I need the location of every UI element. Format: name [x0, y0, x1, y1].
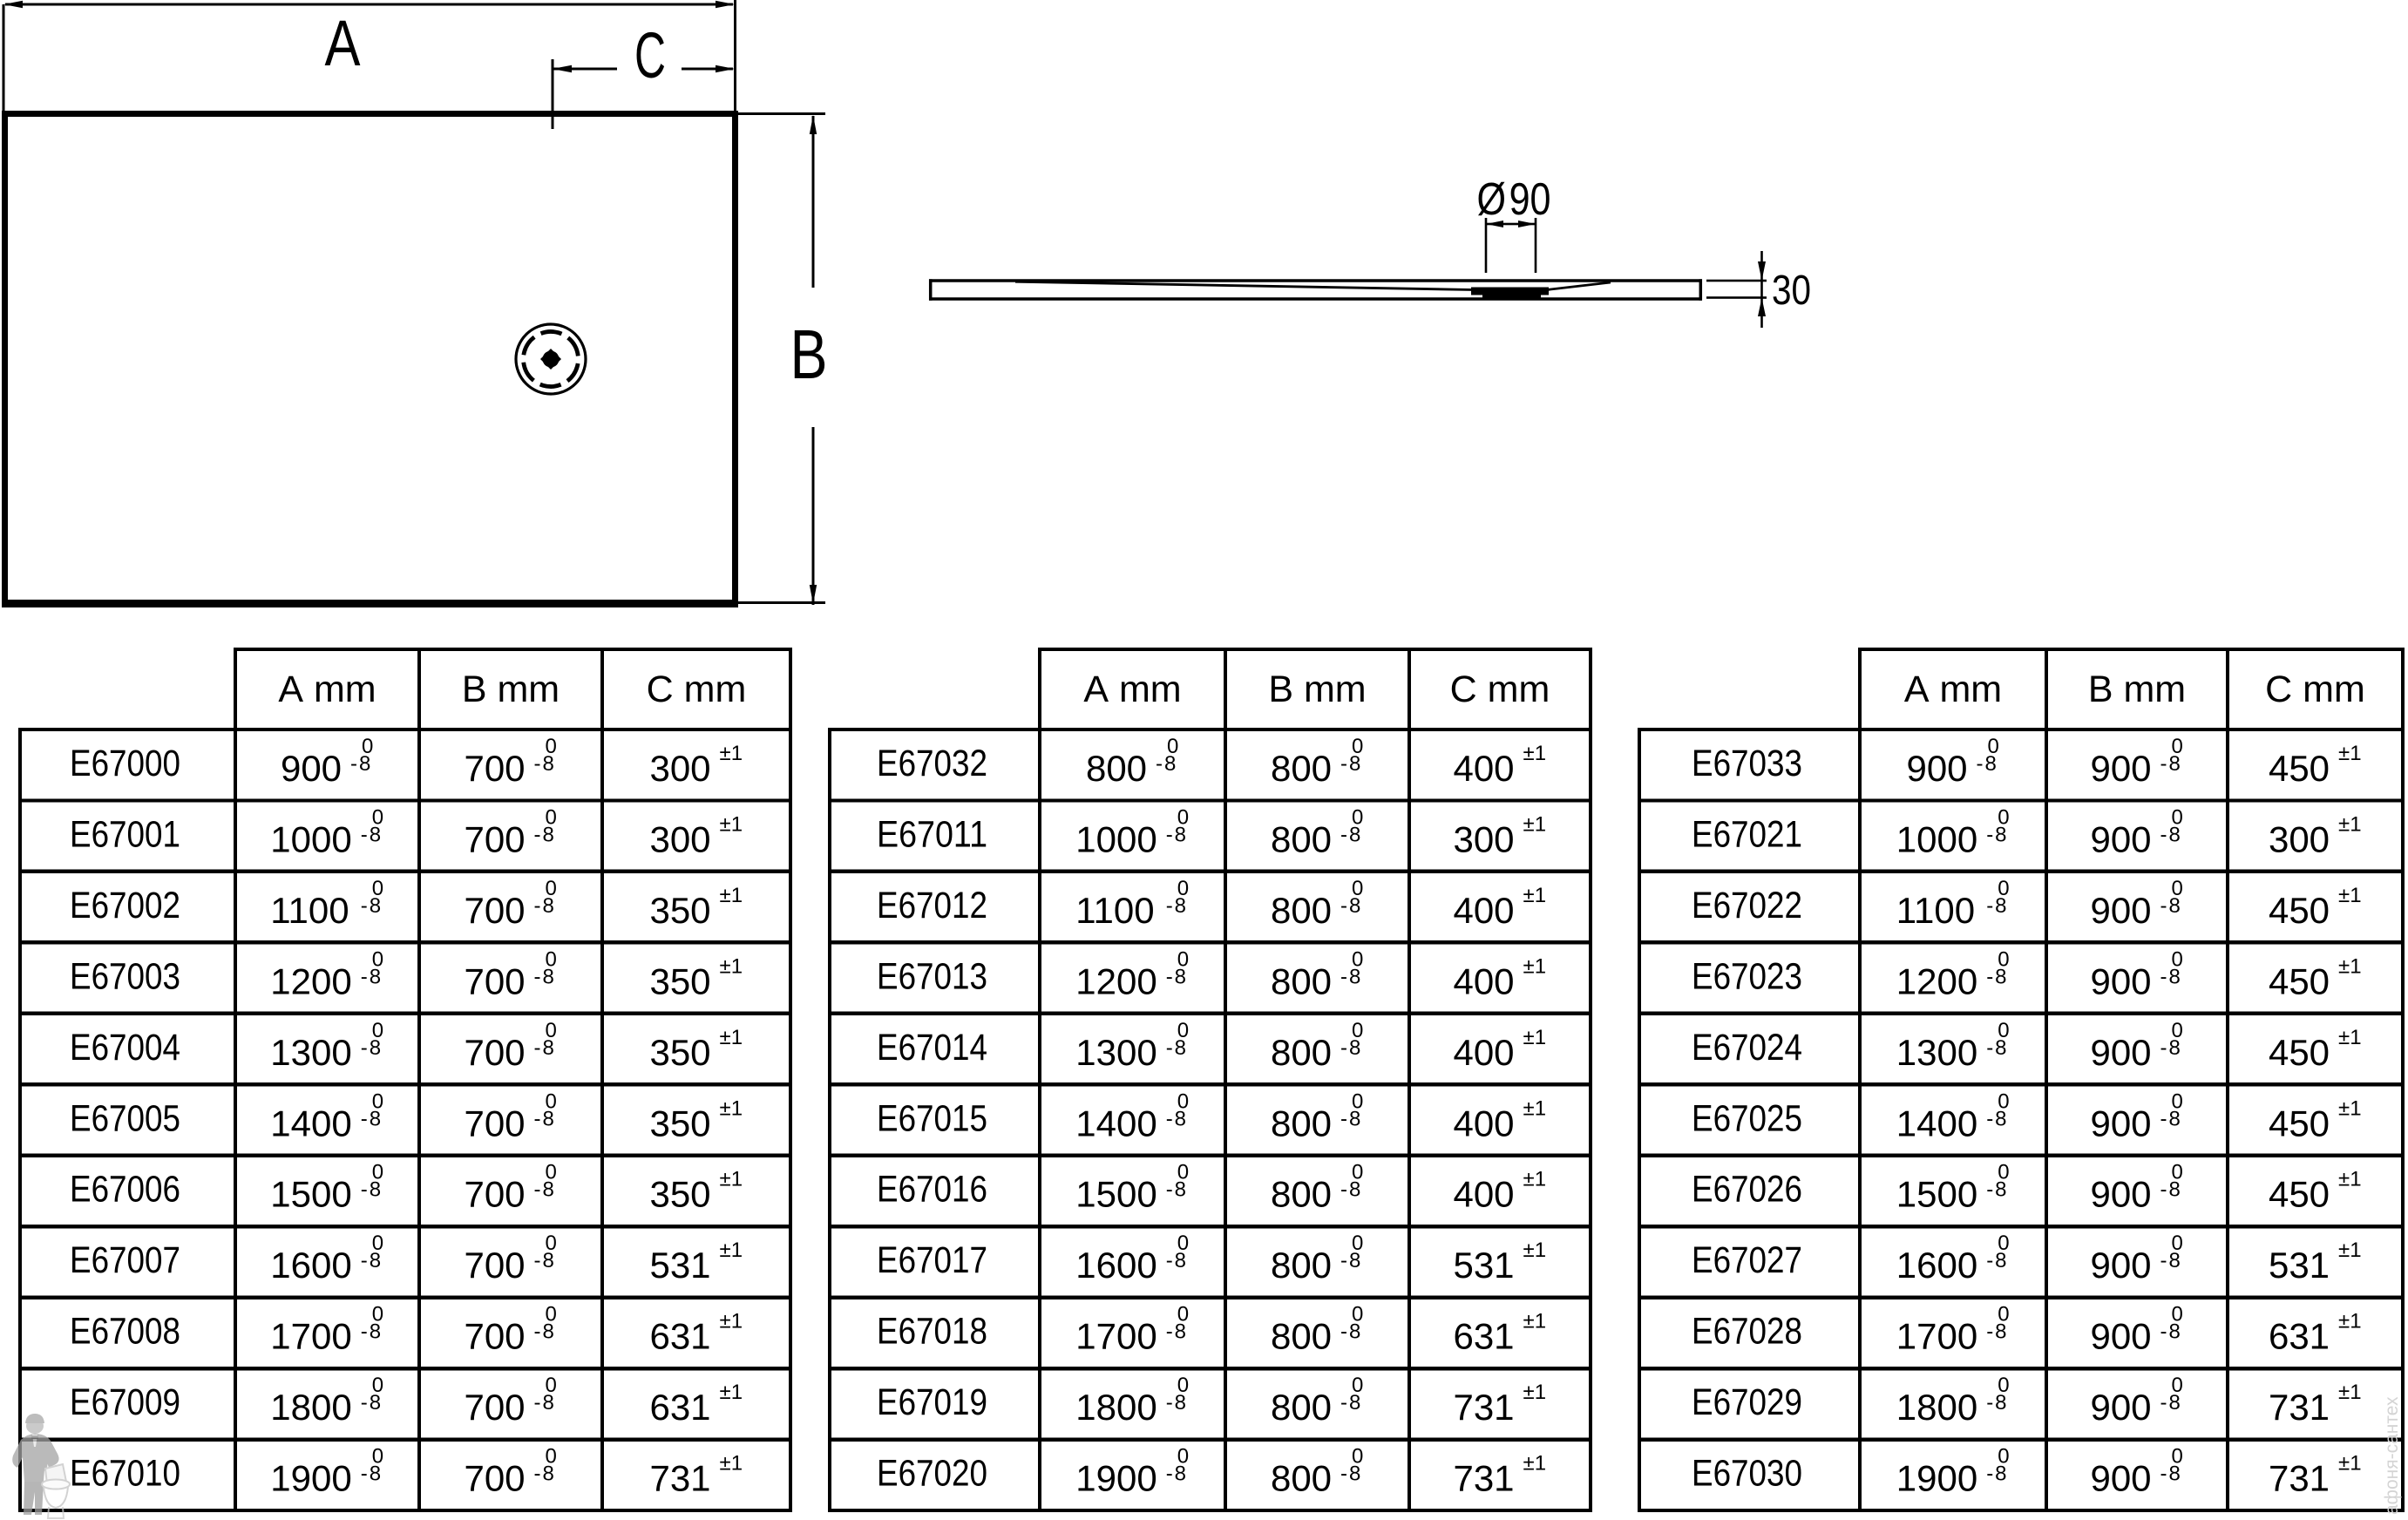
svg-text:- 8: - 8: [1340, 1391, 1360, 1415]
svg-text:±1: ±1: [720, 1096, 743, 1120]
svg-text:B mm: B mm: [2088, 668, 2186, 710]
svg-text:- 8: - 8: [350, 752, 370, 776]
svg-text:450: 450: [2269, 1174, 2330, 1215]
svg-text:- 8: - 8: [2160, 752, 2181, 776]
svg-text:±1: ±1: [1523, 1452, 1547, 1476]
svg-text:±1: ±1: [2338, 954, 2362, 978]
svg-text:E67024: E67024: [1692, 1027, 1802, 1069]
svg-text:- 8: - 8: [361, 1320, 381, 1344]
svg-text:- 8: - 8: [1986, 894, 2006, 918]
svg-text:- 8: - 8: [2160, 965, 2181, 988]
svg-text:450: 450: [2269, 1032, 2330, 1073]
svg-text:450: 450: [2269, 890, 2330, 931]
svg-text:E67008: E67008: [70, 1311, 180, 1353]
svg-text:1800: 1800: [270, 1387, 351, 1428]
svg-text:- 8: - 8: [2160, 1391, 2181, 1415]
svg-text:631: 631: [1453, 1316, 1514, 1357]
svg-text:- 8: - 8: [1340, 965, 1360, 988]
svg-text:±1: ±1: [2338, 812, 2362, 836]
svg-text:E67020: E67020: [877, 1453, 987, 1495]
svg-text:900: 900: [281, 748, 342, 789]
svg-text:1400: 1400: [1075, 1103, 1157, 1143]
svg-text:- 8: - 8: [1340, 1249, 1360, 1272]
svg-text:E67023: E67023: [1692, 955, 1802, 997]
svg-text:1500: 1500: [1075, 1174, 1157, 1215]
svg-text:±1: ±1: [720, 1310, 743, 1333]
svg-text:±1: ±1: [720, 1026, 743, 1049]
svg-text:731: 731: [2269, 1387, 2330, 1428]
svg-text:±1: ±1: [2338, 1096, 2362, 1120]
svg-text:- 8: - 8: [534, 1107, 554, 1130]
svg-text:800: 800: [1271, 1458, 1332, 1499]
svg-text:- 8: - 8: [1340, 894, 1360, 918]
svg-text:731: 731: [2269, 1458, 2330, 1499]
svg-text:±1: ±1: [720, 1452, 743, 1476]
svg-text:700: 700: [464, 1387, 525, 1428]
svg-text:±1: ±1: [1523, 954, 1547, 978]
svg-text:C mm: C mm: [2265, 668, 2365, 710]
svg-text:631: 631: [2269, 1316, 2330, 1357]
svg-text:- 8: - 8: [534, 752, 554, 776]
svg-text:1000: 1000: [1075, 818, 1157, 859]
svg-text:- 8: - 8: [534, 1320, 554, 1344]
svg-text:- 8: - 8: [1986, 1107, 2006, 1130]
svg-text:1700: 1700: [1075, 1316, 1157, 1357]
svg-text:E67017: E67017: [877, 1239, 987, 1281]
svg-text:900: 900: [2090, 1316, 2151, 1357]
svg-text:- 8: - 8: [361, 823, 381, 846]
svg-text:300: 300: [649, 818, 710, 859]
svg-text:- 8: - 8: [2160, 1462, 2181, 1486]
svg-text:E67004: E67004: [70, 1027, 180, 1069]
svg-text:E67022: E67022: [1692, 885, 1802, 926]
svg-text:1900: 1900: [270, 1458, 351, 1499]
svg-text:E67027: E67027: [1692, 1239, 1802, 1281]
svg-text:E67002: E67002: [70, 885, 180, 926]
svg-text:350: 350: [649, 1174, 710, 1215]
svg-text:- 8: - 8: [534, 1462, 554, 1486]
svg-text:400: 400: [1453, 748, 1514, 789]
svg-text:800: 800: [1271, 1316, 1332, 1357]
svg-text:400: 400: [1453, 960, 1514, 1001]
svg-text:300: 300: [1453, 818, 1514, 859]
svg-text:B: B: [790, 316, 828, 393]
svg-text:- 8: - 8: [361, 1391, 381, 1415]
svg-text:- 8: - 8: [1166, 1107, 1186, 1130]
svg-text:- 8: - 8: [1166, 1391, 1186, 1415]
svg-text:C mm: C mm: [647, 668, 747, 710]
svg-text:900: 900: [2090, 818, 2151, 859]
svg-text:350: 350: [649, 1103, 710, 1143]
svg-text:1300: 1300: [1896, 1032, 1977, 1073]
svg-text:800: 800: [1271, 1387, 1332, 1428]
svg-text:±1: ±1: [2338, 1238, 2362, 1262]
svg-text:900: 900: [2090, 1245, 2151, 1286]
svg-text:- 8: - 8: [534, 965, 554, 988]
svg-text:900: 900: [2090, 1103, 2151, 1143]
svg-text:±1: ±1: [1523, 1026, 1547, 1049]
svg-text:±1: ±1: [1523, 1168, 1547, 1191]
svg-text:900: 900: [2090, 960, 2151, 1001]
svg-text:531: 531: [2269, 1245, 2330, 1286]
svg-text:E67001: E67001: [70, 813, 180, 855]
svg-text:900: 900: [1906, 748, 1967, 789]
svg-text:- 8: - 8: [1340, 1320, 1360, 1344]
svg-text:- 8: - 8: [1986, 1036, 2006, 1060]
svg-text:±1: ±1: [720, 884, 743, 907]
svg-text:- 8: - 8: [534, 1178, 554, 1202]
svg-text:A: A: [325, 7, 362, 79]
svg-text:731: 731: [649, 1458, 710, 1499]
svg-text:E67013: E67013: [877, 955, 987, 997]
svg-text:- 8: - 8: [1166, 823, 1186, 846]
svg-text:350: 350: [649, 960, 710, 1001]
svg-text:±1: ±1: [1523, 742, 1547, 765]
svg-text:900: 900: [2090, 748, 2151, 789]
svg-text:E67005: E67005: [70, 1097, 180, 1139]
svg-text:1300: 1300: [270, 1032, 351, 1073]
svg-text:631: 631: [649, 1316, 710, 1357]
svg-text:1800: 1800: [1075, 1387, 1157, 1428]
svg-text:E67000: E67000: [70, 743, 180, 784]
svg-text:900: 900: [2090, 890, 2151, 931]
svg-text:900: 900: [2090, 1174, 2151, 1215]
svg-text:- 8: - 8: [1986, 823, 2006, 846]
svg-text:1500: 1500: [270, 1174, 351, 1215]
svg-text:350: 350: [649, 890, 710, 931]
svg-text:±1: ±1: [720, 1238, 743, 1262]
svg-text:- 8: - 8: [1986, 965, 2006, 988]
svg-text:- 8: - 8: [361, 1462, 381, 1486]
svg-text:±1: ±1: [2338, 1310, 2362, 1333]
svg-text:C mm: C mm: [1450, 668, 1550, 710]
svg-text:E67025: E67025: [1692, 1097, 1802, 1139]
svg-text:±1: ±1: [1523, 1096, 1547, 1120]
svg-text:±1: ±1: [1523, 812, 1547, 836]
svg-text:800: 800: [1271, 748, 1332, 789]
svg-text:A mm: A mm: [1083, 668, 1181, 710]
svg-text:400: 400: [1453, 1174, 1514, 1215]
svg-text:- 8: - 8: [1166, 1249, 1186, 1272]
svg-text:E67029: E67029: [1692, 1381, 1802, 1423]
svg-text:1900: 1900: [1075, 1458, 1157, 1499]
svg-text:- 8: - 8: [2160, 1107, 2181, 1130]
svg-text:±1: ±1: [1523, 884, 1547, 907]
svg-text:E67007: E67007: [70, 1239, 180, 1281]
svg-text:±1: ±1: [1523, 1381, 1547, 1404]
svg-text:- 8: - 8: [361, 1178, 381, 1202]
svg-text:- 8: - 8: [1340, 1107, 1360, 1130]
svg-text:B mm: B mm: [1268, 668, 1366, 710]
svg-text:400: 400: [1453, 890, 1514, 931]
svg-text:531: 531: [1453, 1245, 1514, 1286]
svg-text:800: 800: [1271, 1103, 1332, 1143]
svg-text:E67009: E67009: [70, 1381, 180, 1423]
svg-text:- 8: - 8: [534, 823, 554, 846]
svg-text:900: 900: [2090, 1032, 2151, 1073]
svg-text:±1: ±1: [2338, 884, 2362, 907]
svg-text:афоня-сантех: афоня-сантех: [2382, 1396, 2402, 1515]
svg-text:- 8: - 8: [534, 894, 554, 918]
svg-text:30: 30: [1772, 268, 1811, 314]
svg-text:E67011: E67011: [877, 813, 987, 855]
svg-text:700: 700: [464, 1458, 525, 1499]
svg-text:700: 700: [464, 1103, 525, 1143]
svg-text:1900: 1900: [1896, 1458, 1977, 1499]
svg-text:1100: 1100: [1075, 890, 1154, 931]
svg-text:A mm: A mm: [1904, 668, 2002, 710]
svg-text:900: 900: [2090, 1387, 2151, 1428]
svg-text:±1: ±1: [720, 1381, 743, 1404]
svg-text:800: 800: [1271, 890, 1332, 931]
svg-text:±1: ±1: [2338, 1381, 2362, 1404]
svg-text:E67030: E67030: [1692, 1453, 1802, 1495]
svg-text:±1: ±1: [2338, 742, 2362, 765]
svg-text:- 8: - 8: [2160, 823, 2181, 846]
svg-text:E67018: E67018: [877, 1311, 987, 1353]
svg-text:- 8: - 8: [361, 1107, 381, 1130]
svg-text:700: 700: [464, 1032, 525, 1073]
svg-text:B mm: B mm: [462, 668, 560, 710]
svg-text:800: 800: [1271, 960, 1332, 1001]
svg-text:700: 700: [464, 890, 525, 931]
svg-text:E67016: E67016: [877, 1169, 987, 1211]
svg-text:900: 900: [2090, 1458, 2151, 1499]
svg-text:1700: 1700: [270, 1316, 351, 1357]
svg-text:- 8: - 8: [1340, 1178, 1360, 1202]
svg-text:- 8: - 8: [2160, 1178, 2181, 1202]
svg-text:- 8: - 8: [1986, 1462, 2006, 1486]
svg-text:1300: 1300: [1075, 1032, 1157, 1073]
svg-text:800: 800: [1271, 1174, 1332, 1215]
svg-text:- 8: - 8: [361, 1036, 381, 1060]
svg-text:- 8: - 8: [361, 965, 381, 988]
svg-text:1700: 1700: [1896, 1316, 1977, 1357]
svg-text:- 8: - 8: [1156, 752, 1176, 776]
svg-text:±1: ±1: [720, 812, 743, 836]
svg-text:- 8: - 8: [534, 1036, 554, 1060]
svg-text:731: 731: [1453, 1387, 1514, 1428]
svg-text:700: 700: [464, 960, 525, 1001]
svg-text:E67028: E67028: [1692, 1311, 1802, 1353]
svg-text:1200: 1200: [270, 960, 351, 1001]
svg-text:450: 450: [2269, 1103, 2330, 1143]
svg-text:±1: ±1: [2338, 1452, 2362, 1476]
svg-text:400: 400: [1453, 1103, 1514, 1143]
svg-text:1600: 1600: [1896, 1245, 1977, 1286]
svg-text:E67019: E67019: [877, 1381, 987, 1423]
svg-text:- 8: - 8: [1986, 1391, 2006, 1415]
svg-text:±1: ±1: [2338, 1168, 2362, 1191]
svg-text:- 8: - 8: [2160, 894, 2181, 918]
svg-text:1200: 1200: [1075, 960, 1157, 1001]
svg-text:- 8: - 8: [1166, 1178, 1186, 1202]
svg-text:A mm: A mm: [278, 668, 376, 710]
svg-text:E67026: E67026: [1692, 1169, 1802, 1211]
svg-text:800: 800: [1271, 1245, 1332, 1286]
svg-text:700: 700: [464, 1245, 525, 1286]
svg-text:800: 800: [1271, 818, 1332, 859]
svg-text:±1: ±1: [720, 954, 743, 978]
svg-text:E67010: E67010: [70, 1453, 180, 1495]
svg-text:400: 400: [1453, 1032, 1514, 1073]
svg-text:- 8: - 8: [361, 1249, 381, 1272]
svg-text:1600: 1600: [1075, 1245, 1157, 1286]
svg-text:- 8: - 8: [2160, 1249, 2181, 1272]
svg-text:700: 700: [464, 1174, 525, 1215]
svg-text:- 8: - 8: [2160, 1320, 2181, 1344]
svg-text:- 8: - 8: [534, 1249, 554, 1272]
svg-text:- 8: - 8: [1340, 1036, 1360, 1060]
svg-text:- 8: - 8: [1986, 1178, 2006, 1202]
svg-text:350: 350: [649, 1032, 710, 1073]
svg-text:- 8: - 8: [534, 1391, 554, 1415]
svg-text:- 8: - 8: [361, 894, 381, 918]
svg-text:700: 700: [464, 1316, 525, 1357]
svg-text:- 8: - 8: [1166, 1320, 1186, 1344]
svg-text:±1: ±1: [1523, 1310, 1547, 1333]
svg-text:1100: 1100: [1896, 890, 1975, 931]
svg-text:450: 450: [2269, 960, 2330, 1001]
svg-text:C: C: [634, 19, 666, 92]
svg-text:±1: ±1: [1523, 1238, 1547, 1262]
svg-text:531: 531: [649, 1245, 710, 1286]
svg-text:E67014: E67014: [877, 1027, 987, 1069]
svg-text:- 8: - 8: [1986, 1249, 2006, 1272]
svg-text:E67033: E67033: [1692, 743, 1802, 784]
svg-text:- 8: - 8: [1986, 1320, 2006, 1344]
svg-text:800: 800: [1086, 748, 1147, 789]
svg-text:300: 300: [2269, 818, 2330, 859]
svg-text:E67006: E67006: [70, 1169, 180, 1211]
svg-text:700: 700: [464, 748, 525, 789]
svg-text:- 8: - 8: [2160, 1036, 2181, 1060]
svg-text:1000: 1000: [270, 818, 351, 859]
svg-text:300: 300: [649, 748, 710, 789]
svg-text:1100: 1100: [270, 890, 349, 931]
svg-text:E67032: E67032: [877, 743, 987, 784]
svg-text:- 8: - 8: [1166, 894, 1186, 918]
svg-text:±1: ±1: [720, 742, 743, 765]
svg-text:450: 450: [2269, 748, 2330, 789]
svg-text:- 8: - 8: [1340, 823, 1360, 846]
svg-text:700: 700: [464, 818, 525, 859]
svg-text:1400: 1400: [270, 1103, 351, 1143]
svg-text:E67021: E67021: [1692, 813, 1802, 855]
svg-text:±1: ±1: [720, 1168, 743, 1191]
svg-text:1200: 1200: [1896, 960, 1977, 1001]
svg-text:- 8: - 8: [1977, 752, 1997, 776]
svg-text:- 8: - 8: [1166, 1462, 1186, 1486]
svg-text:- 8: - 8: [1340, 1462, 1360, 1486]
svg-text:E67012: E67012: [877, 885, 987, 926]
svg-text:631: 631: [649, 1387, 710, 1428]
svg-text:- 8: - 8: [1166, 965, 1186, 988]
svg-text:E67015: E67015: [877, 1097, 987, 1139]
svg-text:E67003: E67003: [70, 955, 180, 997]
svg-text:±1: ±1: [2338, 1026, 2362, 1049]
svg-text:1500: 1500: [1896, 1174, 1977, 1215]
svg-text:1000: 1000: [1896, 818, 1977, 859]
svg-text:1800: 1800: [1896, 1387, 1977, 1428]
svg-text:- 8: - 8: [1166, 1036, 1186, 1060]
svg-text:- 8: - 8: [1340, 752, 1360, 776]
svg-text:731: 731: [1453, 1458, 1514, 1499]
svg-text:1600: 1600: [270, 1245, 351, 1286]
svg-text:1400: 1400: [1896, 1103, 1977, 1143]
svg-text:800: 800: [1271, 1032, 1332, 1073]
svg-text:Ø 90: Ø 90: [1477, 174, 1551, 225]
